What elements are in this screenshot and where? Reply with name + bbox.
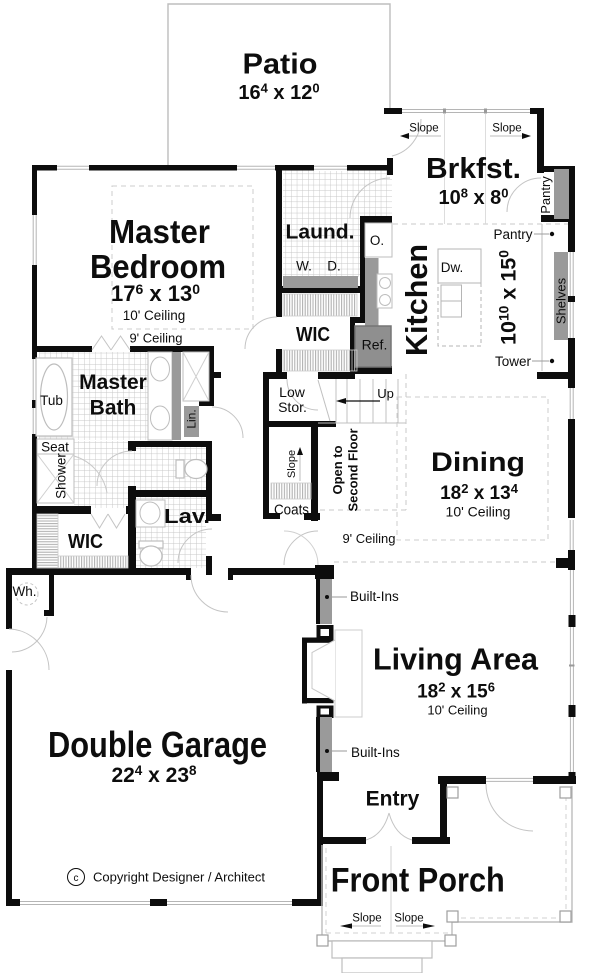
svg-text:Stor.: Stor. [278,399,307,415]
svg-text:O.: O. [370,233,384,248]
svg-text:Ref.: Ref. [362,337,388,353]
svg-text:182 x 156: 182 x 156 [417,680,495,703]
svg-text:WIC: WIC [68,531,103,553]
svg-text:Pantry: Pantry [493,227,532,242]
svg-text:Bedroom: Bedroom [90,248,226,285]
svg-text:Bath: Bath [90,397,137,420]
svg-text:Wh.: Wh. [12,584,36,599]
svg-text:224 x 238: 224 x 238 [111,763,197,787]
svg-text:182 x 134: 182 x 134 [440,481,519,504]
svg-text:D.: D. [327,259,341,274]
svg-text:Tower: Tower [495,354,532,369]
svg-text:Low: Low [279,384,306,400]
svg-text:10' Ceiling: 10' Ceiling [427,703,487,718]
svg-text:Living Area: Living Area [373,642,539,677]
svg-text:Patio: Patio [243,49,318,81]
svg-text:Seat: Seat [41,440,69,455]
svg-text:1010 x 150: 1010 x 150 [497,250,521,345]
svg-text:Master: Master [79,371,147,394]
svg-text:Up: Up [377,386,394,401]
svg-text:Laund.: Laund. [286,222,355,244]
svg-text:Kitchen: Kitchen [399,244,434,356]
svg-text:Slope: Slope [394,913,423,925]
svg-text:Brkfst.: Brkfst. [426,153,521,185]
svg-text:Slope: Slope [409,123,438,135]
svg-text:Built-Ins: Built-Ins [350,589,399,604]
svg-text:Second Floor: Second Floor [346,428,361,511]
svg-text:108 x 80: 108 x 80 [438,186,508,210]
svg-text:Lin.: Lin. [185,409,199,428]
svg-text:c: c [74,873,79,884]
svg-text:Coats: Coats [274,503,309,519]
svg-text:176 x 130: 176 x 130 [111,281,200,306]
svg-text:WIC: WIC [296,324,330,346]
svg-text:Front Porch: Front Porch [331,862,505,900]
svg-text:Slope: Slope [352,913,381,925]
svg-text:Master: Master [109,213,210,250]
svg-text:Dw.: Dw. [441,260,464,275]
svg-text:Entry: Entry [366,788,420,811]
svg-text:10' Ceiling: 10' Ceiling [123,308,186,323]
svg-text:Double Garage: Double Garage [48,724,267,765]
svg-text:Slope: Slope [492,123,521,135]
svg-text:Copyright Designer / Architect: Copyright Designer / Architect [93,870,265,885]
svg-text:Built-Ins: Built-Ins [351,745,400,760]
svg-text:Shower: Shower [54,453,69,499]
svg-text:W.: W. [296,259,312,274]
svg-text:164 x 120: 164 x 120 [238,81,319,105]
svg-text:Pantry: Pantry [538,176,553,214]
svg-text:9' Ceiling: 9' Ceiling [342,531,395,546]
svg-text:Dining: Dining [431,447,525,477]
svg-text:Lav.: Lav. [164,505,210,528]
svg-text:Shelves: Shelves [554,277,569,324]
svg-text:9' Ceiling: 9' Ceiling [129,331,182,346]
svg-text:Slope: Slope [286,450,298,478]
svg-text:10' Ceiling: 10' Ceiling [446,504,511,520]
svg-text:Tub: Tub [40,393,63,408]
svg-text:Open to: Open to [330,445,345,494]
